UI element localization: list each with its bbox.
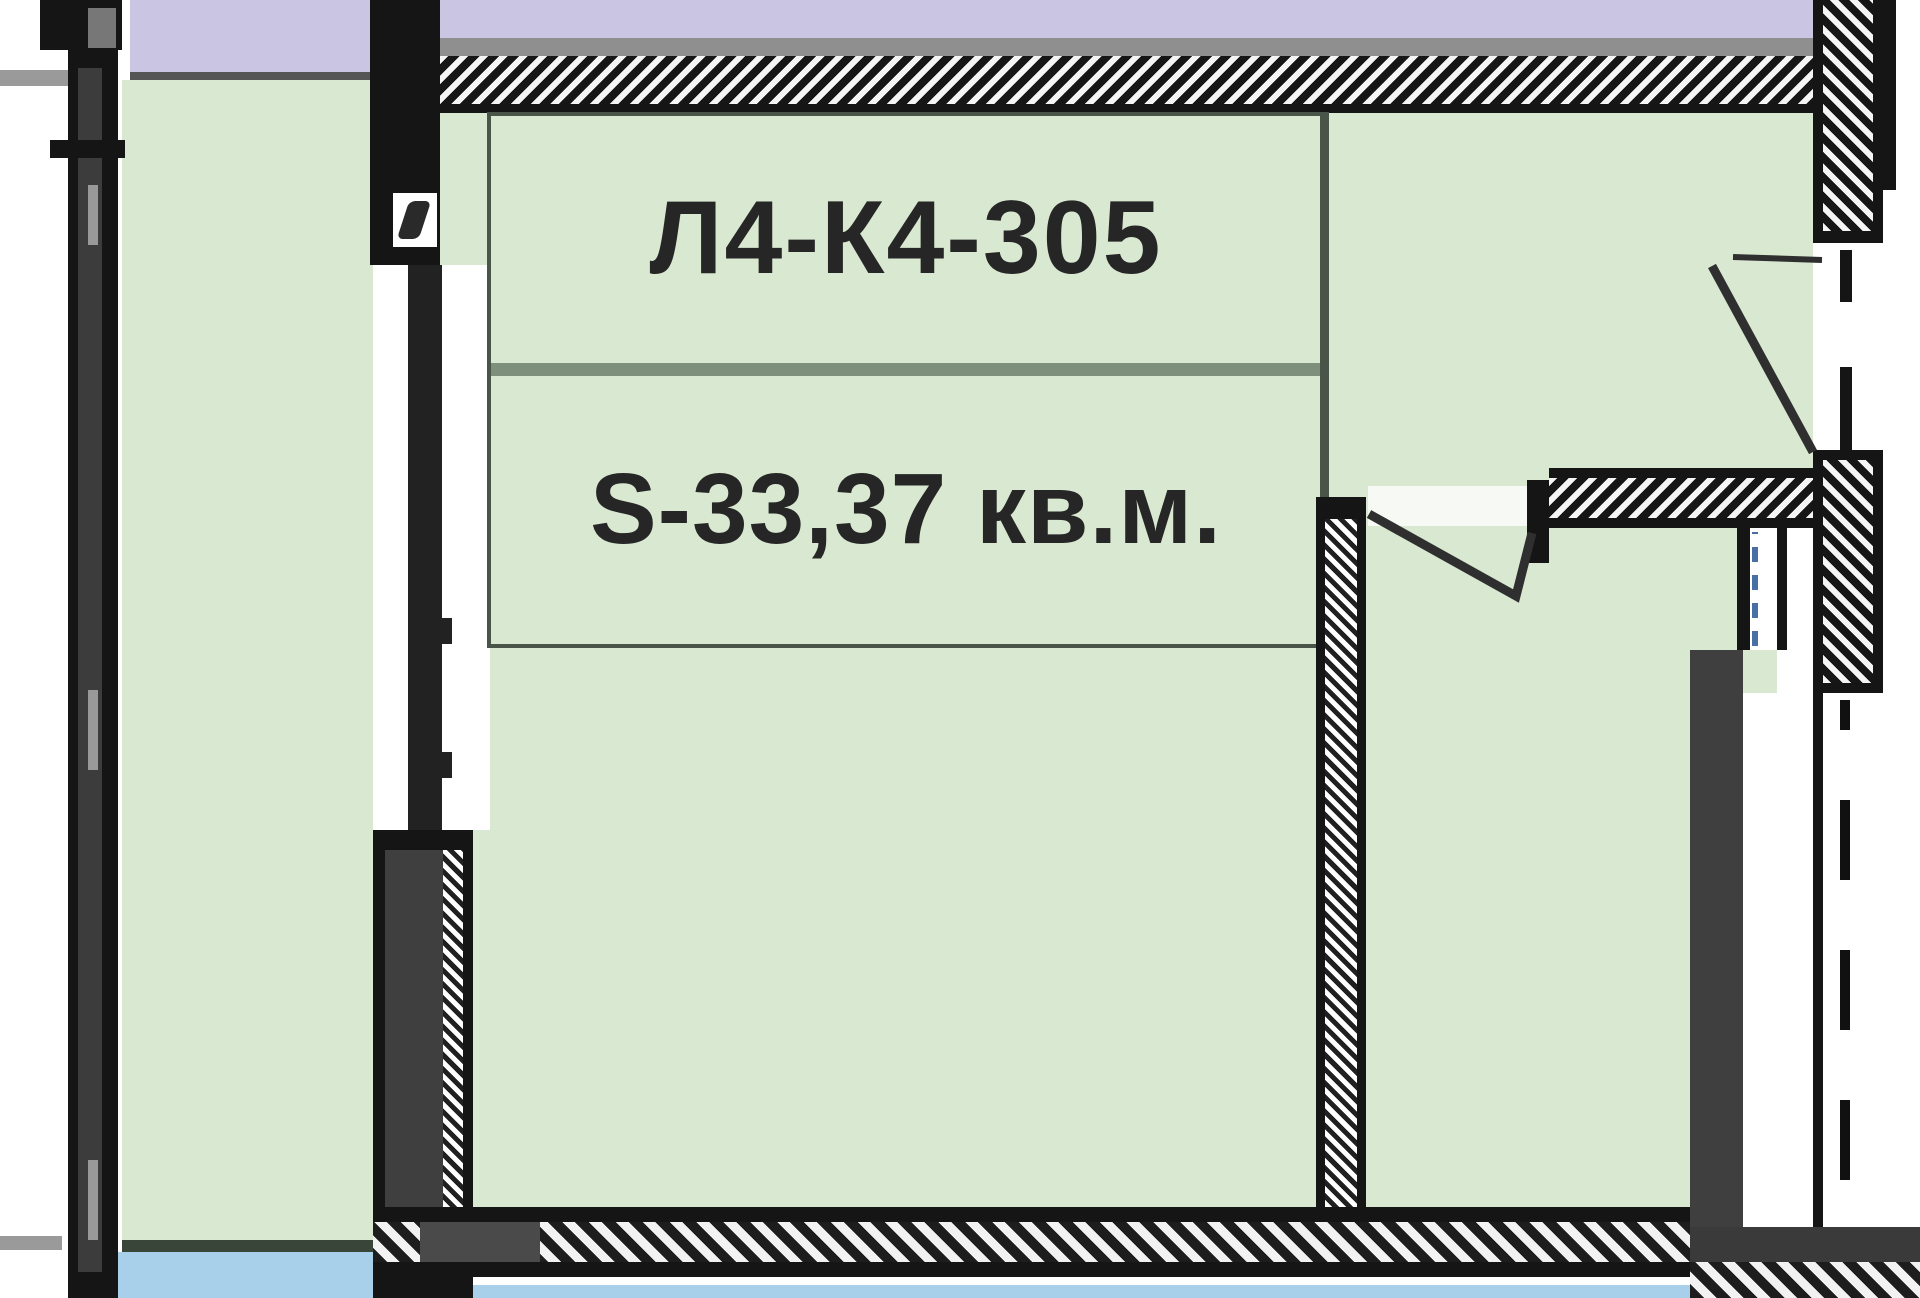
shaft-window-dash (1752, 532, 1758, 646)
neighbor-area-top-strip (440, 0, 1813, 38)
bath-partition-cap (1316, 497, 1366, 519)
right-overhang-dashed-line (1840, 700, 1850, 1180)
bath-partition-core (1325, 519, 1357, 1207)
middle-thin-wall-nub-2 (442, 752, 452, 778)
unit-label-divider (491, 363, 1321, 376)
top-wall-insulation (440, 56, 1813, 104)
middle-thin-wall (408, 265, 442, 830)
bath-partition-left (1316, 519, 1325, 1207)
corridor-bottom-line (122, 1240, 373, 1252)
left-wall-core (78, 68, 102, 1272)
shaft-right-border (1777, 528, 1787, 650)
unit-number-label: Л4-К4-305 (487, 116, 1325, 361)
left-wall-cap (50, 140, 125, 158)
bottom-wall-gray-insert (420, 1222, 540, 1262)
bottom-area-left (118, 1252, 373, 1298)
middle-thick-wall-insulation (443, 850, 463, 1207)
floor-plan: Л4-К4-305 S-33,37 кв.м. (0, 0, 1920, 1298)
top-wall-gray-band (370, 38, 1883, 56)
bath-door-opening (1368, 486, 1527, 526)
exterior-area-bottom-right (1743, 693, 1920, 1230)
middle-thin-wall-nub-1 (442, 618, 452, 644)
entrance-door-jamb-2 (1840, 367, 1852, 450)
bottom-area-main (473, 1285, 1690, 1298)
shaft-left-border (1737, 528, 1750, 650)
left-wall-joint-3 (88, 1160, 98, 1240)
hall-bath-wall-insulation (1549, 478, 1817, 518)
axis-tick-bottom-left (0, 1236, 62, 1250)
left-wall-joint-1 (88, 185, 98, 245)
neighbor-area-top-left (130, 0, 370, 72)
bottom-wall-insulation (373, 1222, 1690, 1262)
right-lower-edge-line (1813, 693, 1823, 1230)
right-wall-top-insulation (1823, 0, 1873, 231)
right-wall-mid-insulation (1823, 460, 1873, 683)
middle-thick-wall-core (385, 850, 443, 1207)
hall-bath-wall-bottom (1549, 518, 1817, 528)
left-wall-joint-2 (88, 690, 98, 770)
unit-area-label: S-33,37 кв.м. (487, 378, 1325, 640)
bottom-wall-bottom-border (373, 1262, 1690, 1277)
right-wall-outer-line (1883, 0, 1896, 190)
bottom-right-wall-band (1690, 1227, 1920, 1262)
bottom-right-wall-hatch (1690, 1262, 1920, 1298)
bath-partition-right (1357, 519, 1366, 1207)
entrance-door-jamb-1 (1840, 250, 1852, 302)
hall-bath-wall-cap (1527, 480, 1549, 563)
middle-thick-wall-cap (373, 830, 473, 850)
left-wall-top-gray (88, 8, 116, 48)
hall-bath-wall-top (1549, 468, 1817, 478)
room-divider-line (1320, 112, 1329, 497)
corridor-room (122, 80, 373, 1240)
right-lower-wall-band (1690, 650, 1743, 1230)
bottom-wall-top-border (373, 1207, 1690, 1222)
